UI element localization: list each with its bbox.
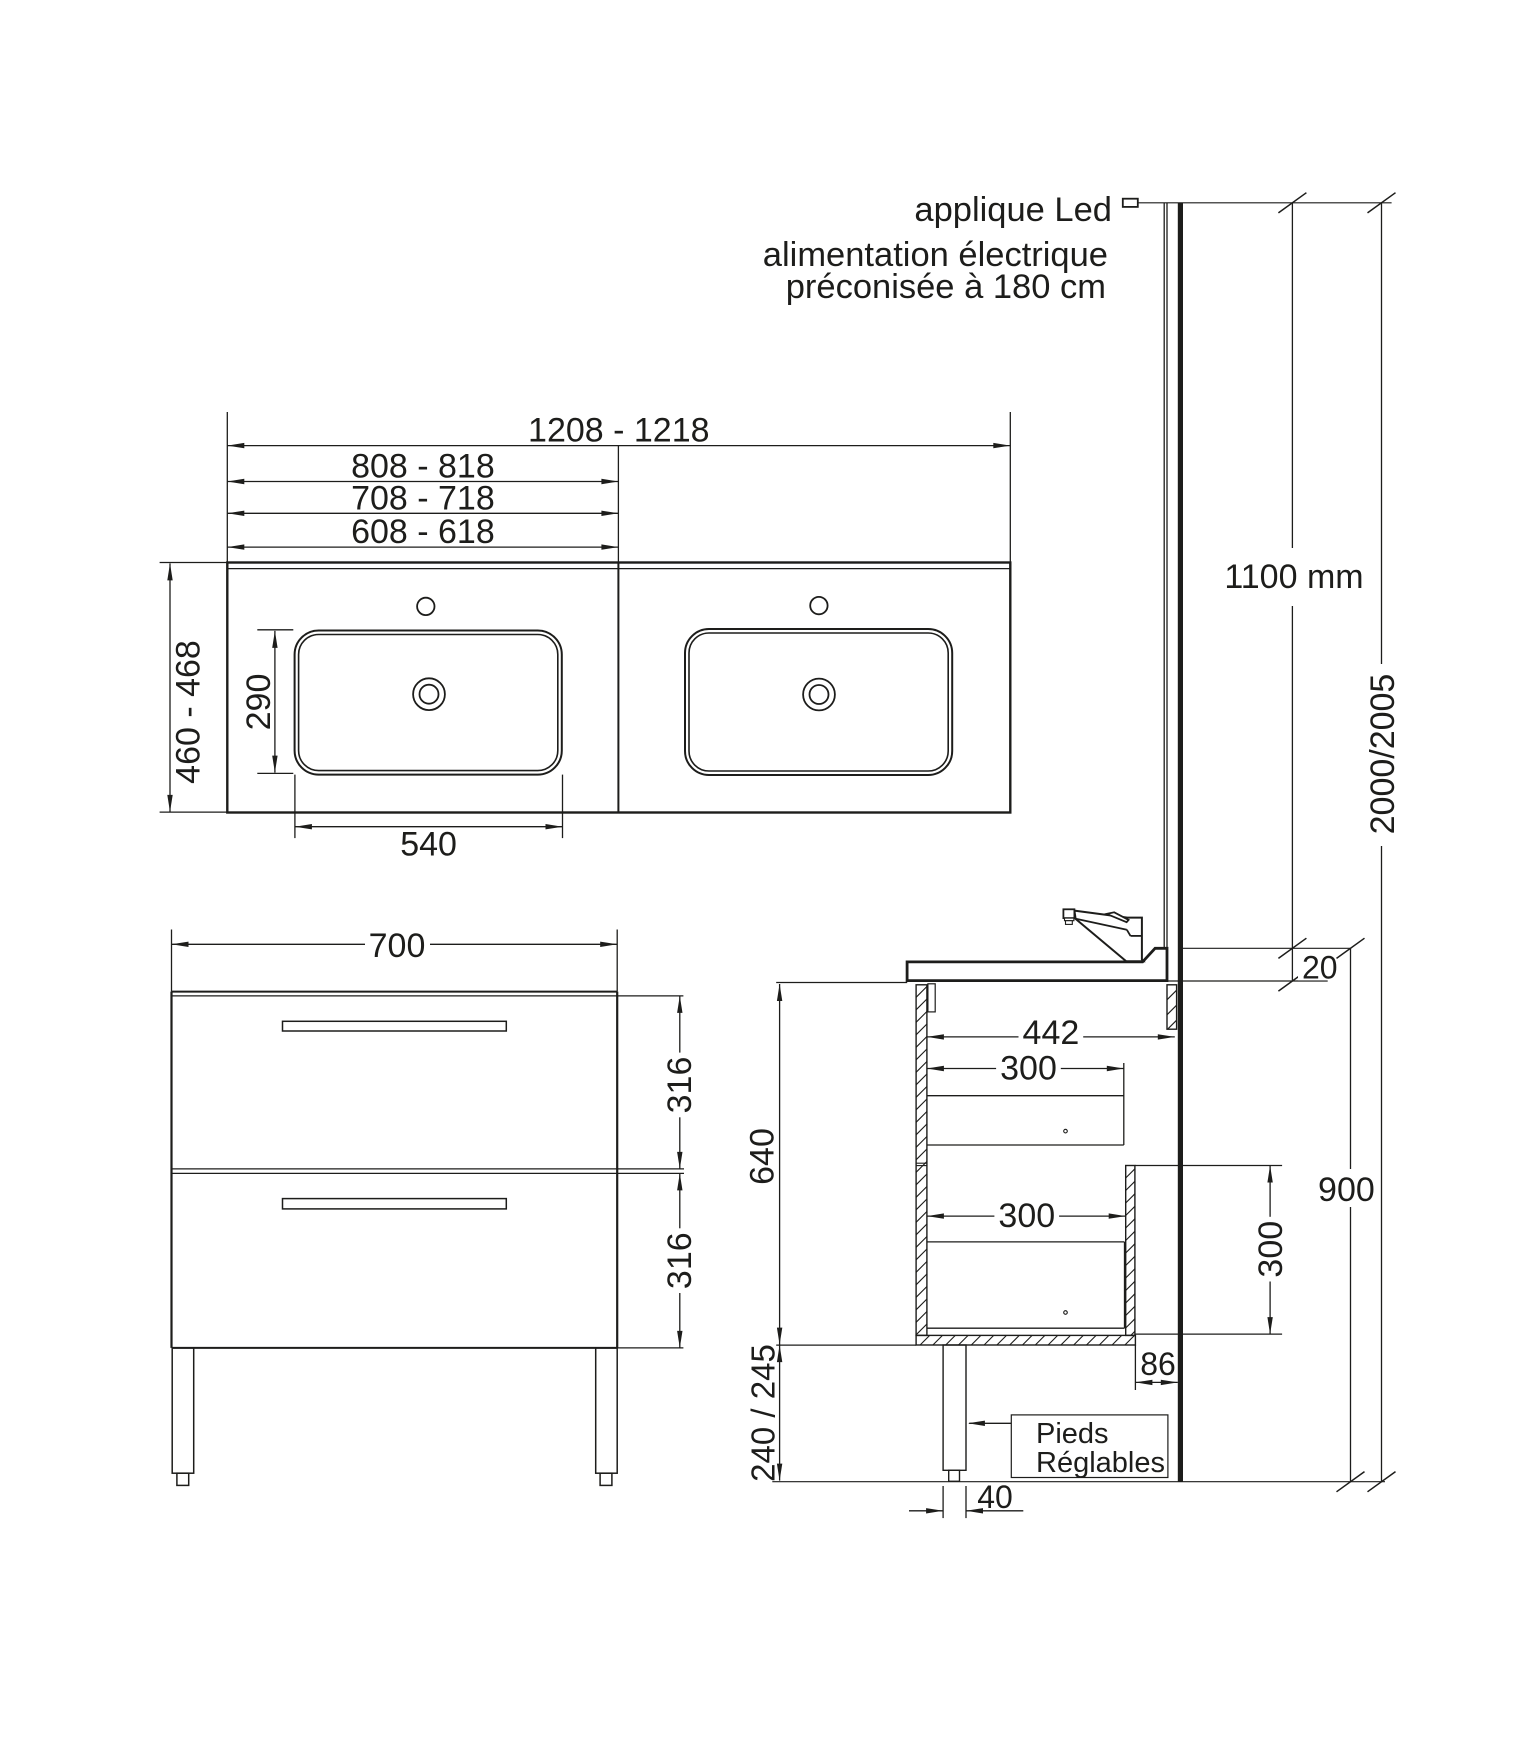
svg-text:préconisée à 180 cm: préconisée à 180 cm <box>786 268 1106 306</box>
svg-text:300: 300 <box>998 1197 1055 1235</box>
svg-text:700: 700 <box>369 927 426 965</box>
svg-text:1208 - 1218: 1208 - 1218 <box>528 412 710 450</box>
svg-text:316: 316 <box>661 1057 699 1114</box>
svg-text:540: 540 <box>400 826 457 864</box>
svg-text:708 - 718: 708 - 718 <box>351 479 495 517</box>
svg-text:300: 300 <box>1000 1050 1057 1088</box>
svg-text:20: 20 <box>1302 950 1338 986</box>
svg-text:900: 900 <box>1318 1171 1375 1209</box>
svg-text:460 - 468: 460 - 468 <box>170 640 208 784</box>
svg-text:608 - 618: 608 - 618 <box>351 513 495 551</box>
svg-text:Pieds: Pieds <box>1036 1418 1109 1450</box>
svg-text:86: 86 <box>1140 1346 1176 1382</box>
svg-text:Réglables: Réglables <box>1036 1447 1165 1479</box>
svg-text:2000/2005: 2000/2005 <box>1364 674 1402 835</box>
svg-text:applique Led: applique Led <box>914 191 1112 229</box>
svg-text:40: 40 <box>977 1479 1013 1515</box>
svg-text:240 / 245: 240 / 245 <box>745 1344 782 1482</box>
svg-text:442: 442 <box>1023 1014 1080 1052</box>
svg-text:300: 300 <box>1252 1221 1290 1278</box>
svg-text:290: 290 <box>240 674 278 731</box>
svg-text:316: 316 <box>661 1232 699 1289</box>
svg-text:1100 mm: 1100 mm <box>1224 558 1363 596</box>
svg-text:640: 640 <box>744 1128 782 1185</box>
